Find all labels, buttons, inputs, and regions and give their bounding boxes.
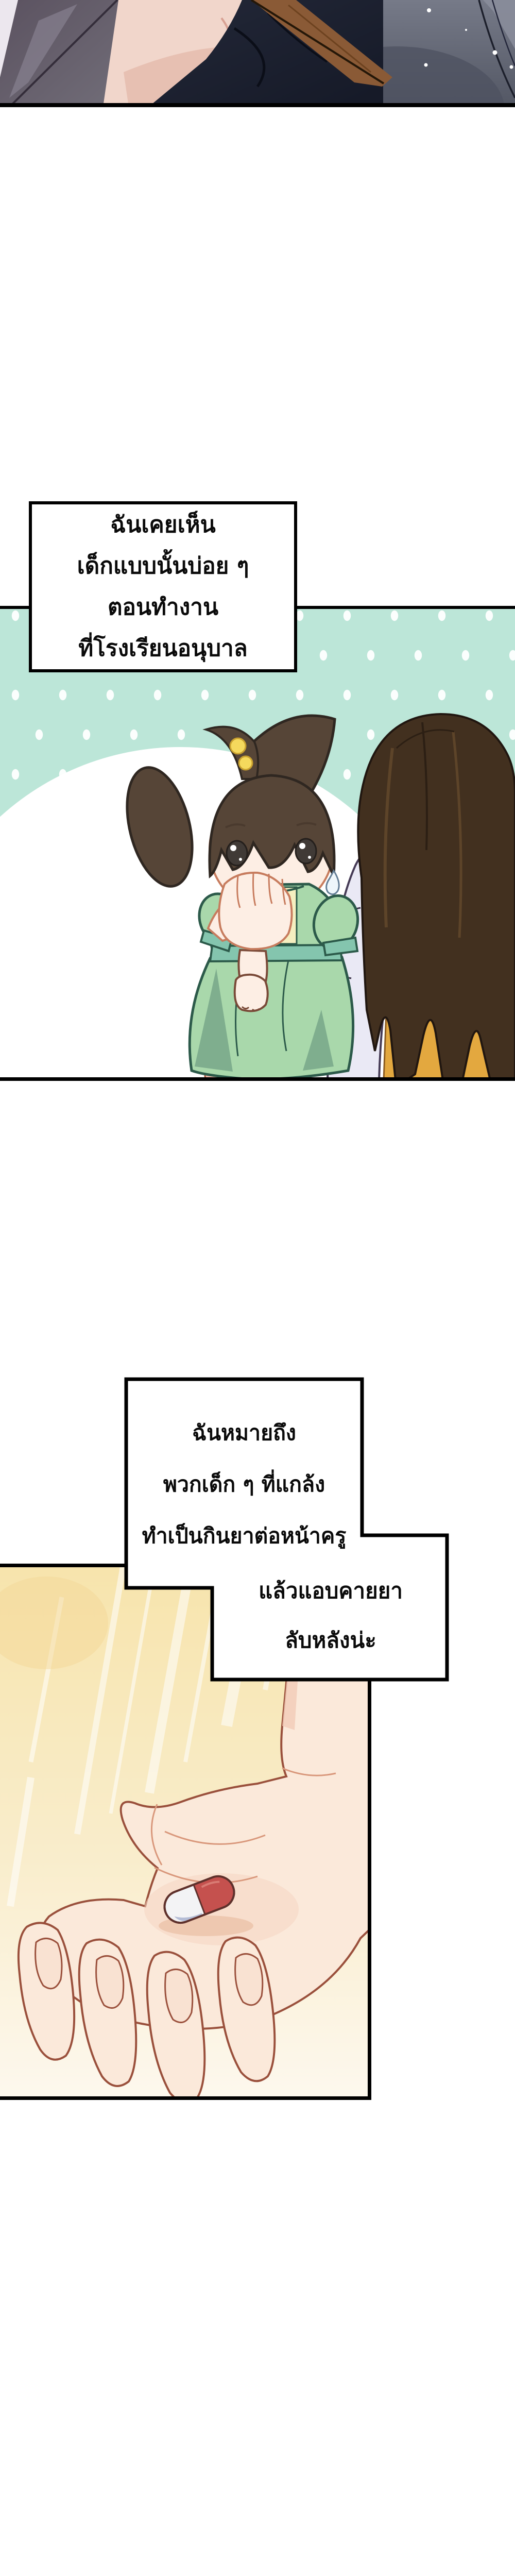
girl-character xyxy=(116,716,363,1080)
woman-hair xyxy=(358,714,515,1080)
caption-box-2a: ฉันหมายถึง พวกเด็ก ๆ ที่แกล้ง ทำเป็นกินย… xyxy=(127,1399,361,1569)
girl-eye-left xyxy=(227,841,247,866)
caption2a-line1: ฉันหมายถึง xyxy=(192,1407,296,1459)
girl-top-tuft xyxy=(206,727,258,779)
girl-hand-over-mouth xyxy=(219,873,291,949)
caption1-line2: เด็กแบบนั้นบ่อย ๆ xyxy=(77,546,249,587)
panel-bottom-border xyxy=(0,1077,515,1081)
girl-fist xyxy=(235,975,268,1011)
girl-left-pigtail xyxy=(116,760,203,893)
hand-panel-bottom-border xyxy=(0,2096,371,2100)
panel-polka-dots xyxy=(0,606,515,1081)
girl-eye-right xyxy=(296,839,316,863)
webtoon-page: ฉันเคยเห็น เด็กแบบนั้นบ่อย ๆ ตอนทำงาน ที… xyxy=(0,0,515,2576)
caption1-line3: ตอนทำงาน xyxy=(108,587,218,628)
caption2a-line3: ทำเป็นกินยาต่อหน้าครู xyxy=(142,1510,347,1562)
caption1-line1: ฉันเคยเห็น xyxy=(110,504,215,546)
caption-box-2b: แล้วแอบคายยา ลับหลังน่ะ xyxy=(222,1564,439,1667)
woman-character xyxy=(328,714,515,1080)
panel-bottom-border xyxy=(0,103,515,107)
caption2b-line1: แล้วแอบคายยา xyxy=(259,1566,403,1616)
caption2a-line2: พวกเด็ก ๆ ที่แกล้ง xyxy=(163,1459,325,1510)
caption1-line4: ที่โรงเรียนอนุบาล xyxy=(78,628,247,669)
hairtie-bead-2 xyxy=(239,756,252,770)
caption-box-1: ฉันเคยเห็น เด็กแบบนั้นบ่อย ๆ ตอนทำงาน ที… xyxy=(29,501,297,672)
characters-art xyxy=(0,606,515,1081)
hairtie-bead-1 xyxy=(230,738,246,754)
panel-closeup-top xyxy=(0,0,515,107)
caption2b-line2: ลับหลังน่ะ xyxy=(285,1616,376,1665)
closeup-art xyxy=(0,0,515,107)
